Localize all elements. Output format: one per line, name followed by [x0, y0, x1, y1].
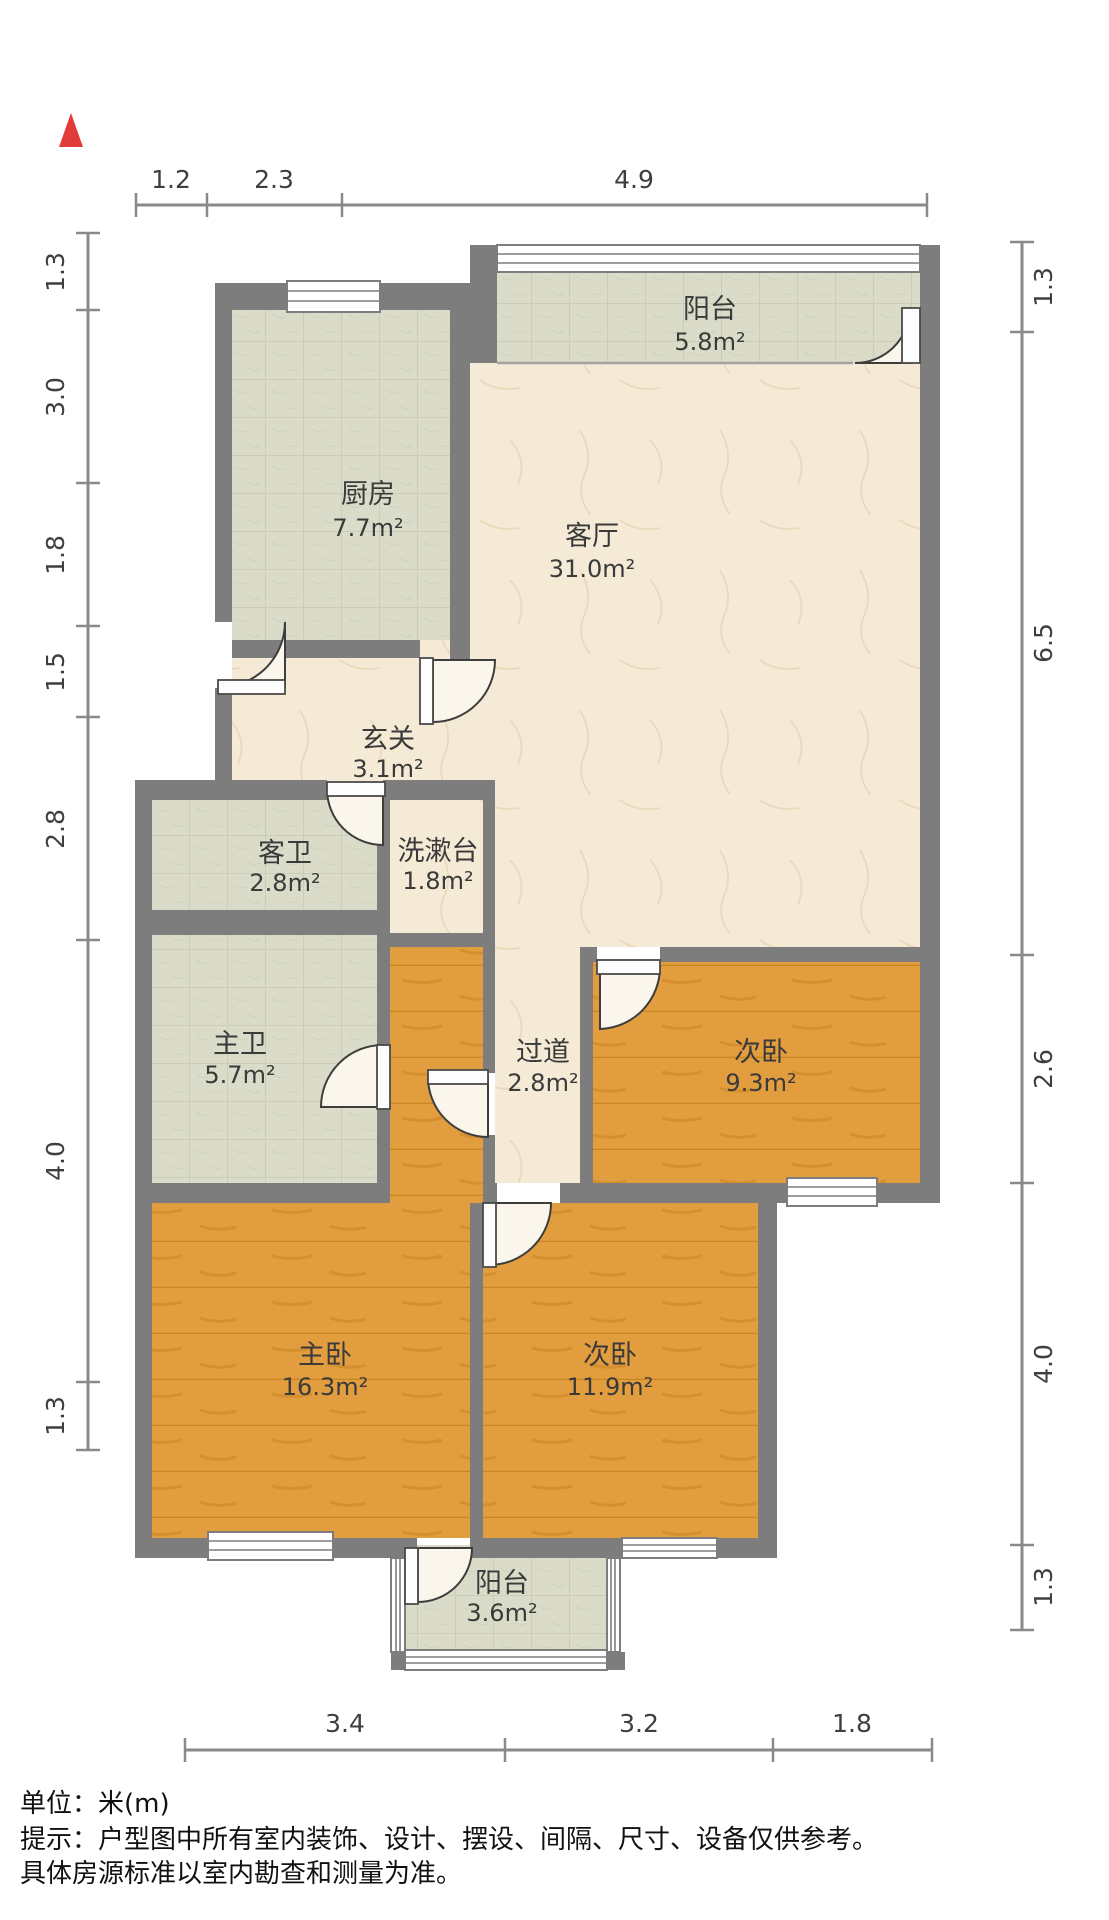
dim-left-3: 1.5 — [41, 652, 70, 692]
room-area-second-bedroom-top: 9.3m² — [725, 1069, 796, 1097]
wall-segment — [377, 1107, 390, 1183]
wall-segment — [580, 947, 597, 962]
window-kitchen — [287, 281, 380, 312]
room-area-kitchen: 7.7m² — [332, 514, 403, 542]
window-balcony-bottom — [405, 1650, 607, 1670]
wall-segment — [580, 947, 593, 1183]
dimension-chain-top: 1.2 2.3 4.9 — [136, 165, 927, 217]
room-label-hallway: 过道 — [516, 1037, 570, 1068]
window-balcony-bottom-left — [391, 1558, 405, 1652]
room-area-second-bedroom-bottom: 11.9m² — [567, 1373, 653, 1401]
window-balcony-bottom-right — [607, 1558, 620, 1652]
dimension-chain-left: 1.3 3.0 1.8 1.5 2.8 4.0 1.3 — [41, 233, 100, 1450]
footer-disclaimer: 单位：米(m) 提示：户型图中所有室内装饰、设计、摆设、间隔、尺寸、设备仅供参考… — [20, 1789, 878, 1889]
dimension-chain-bottom: 3.4 3.2 1.8 — [185, 1709, 932, 1762]
wall-segment — [383, 780, 495, 800]
footer-tip-line2: 具体房源标准以室内勘查和测量为准。 — [20, 1859, 462, 1889]
wall-segment — [377, 935, 390, 1045]
room-label-kitchen: 厨房 — [341, 479, 395, 510]
wall-segment — [390, 933, 495, 947]
room-label-washstand: 洗漱台 — [398, 836, 479, 867]
room-label-balcony-bottom: 阳台 — [475, 1568, 529, 1599]
wall-segment — [483, 1135, 495, 1183]
wall-segment — [920, 245, 940, 1203]
floors — [152, 272, 920, 1668]
wall-segment — [660, 947, 920, 962]
floorplan-svg: 阳台 5.8m² 厨房 7.7m² 客厅 31.0m² 玄关 3.1m² 客卫 … — [0, 0, 1109, 1920]
dim-right-0: 1.3 — [1029, 267, 1058, 307]
footer-unit-line: 单位：米(m) — [20, 1789, 170, 1819]
dim-left-1: 3.0 — [41, 377, 70, 417]
room-label-living-room: 客厅 — [565, 521, 619, 552]
wall-segment — [483, 780, 495, 933]
wall-segment — [470, 1203, 483, 1538]
dim-top-1: 2.3 — [254, 165, 294, 194]
window-second-bedroom-top — [787, 1178, 877, 1206]
wall-segment — [758, 1183, 777, 1558]
room-label-guest-bathroom: 客卫 — [258, 838, 312, 869]
room-area-living-room: 31.0m² — [549, 555, 635, 583]
wall-segment — [450, 310, 470, 660]
dim-bottom-1: 3.2 — [619, 1709, 659, 1738]
room-label-master-bathroom: 主卫 — [213, 1029, 267, 1060]
room-label-entryway: 玄关 — [361, 724, 415, 755]
dim-left-4: 2.8 — [41, 809, 70, 849]
room-label-second-bedroom-bottom: 次卧 — [583, 1340, 637, 1371]
dim-right-1: 6.5 — [1029, 623, 1058, 663]
dim-left-5: 4.0 — [41, 1141, 70, 1181]
dim-top-0: 1.2 — [151, 165, 191, 194]
room-label-second-bedroom-top: 次卧 — [734, 1037, 788, 1068]
wall-segment — [135, 910, 390, 935]
room-label-master-bedroom: 主卧 — [298, 1340, 352, 1371]
dim-bottom-2: 1.8 — [832, 1709, 872, 1738]
dim-right-4: 1.3 — [1029, 1567, 1058, 1607]
room-area-balcony-bottom: 3.6m² — [466, 1599, 537, 1627]
dim-left-6: 1.3 — [41, 1396, 70, 1436]
room-floor-living-room — [470, 363, 920, 947]
north-arrow-icon — [59, 113, 83, 147]
wall-segment — [232, 640, 420, 658]
room-area-entryway: 3.1m² — [352, 755, 423, 783]
room-area-master-bathroom: 5.7m² — [204, 1061, 275, 1089]
dim-left-2: 1.8 — [41, 535, 70, 575]
dim-right-3: 4.0 — [1029, 1344, 1058, 1384]
room-area-washstand: 1.8m² — [402, 867, 473, 895]
floorplan-page: 阳台 5.8m² 厨房 7.7m² 客厅 31.0m² 玄关 3.1m² 客卫 … — [0, 0, 1109, 1920]
window-balcony-top — [497, 245, 920, 272]
footer-tip-line1: 提示：户型图中所有室内装饰、设计、摆设、间隔、尺寸、设备仅供参考。 — [20, 1825, 878, 1855]
room-area-master-bedroom: 16.3m² — [282, 1373, 368, 1401]
room-area-balcony-top: 5.8m² — [674, 328, 745, 356]
window-bedroom-to-balcony — [622, 1538, 717, 1558]
dim-bottom-0: 3.4 — [325, 1709, 365, 1738]
wall-segment — [135, 780, 327, 800]
wall-segment — [215, 310, 232, 622]
wall-segment — [483, 1183, 497, 1203]
dim-left-0: 1.3 — [41, 252, 70, 292]
dim-right-2: 2.6 — [1029, 1049, 1058, 1089]
room-label-balcony-top: 阳台 — [683, 294, 737, 325]
dimension-chain-right: 1.3 6.5 2.6 4.0 1.3 — [1010, 242, 1058, 1630]
room-area-hallway: 2.8m² — [507, 1069, 578, 1097]
wall-segment — [607, 1652, 625, 1670]
room-area-guest-bathroom: 2.8m² — [249, 869, 320, 897]
wall-segment — [483, 947, 495, 1073]
wall-segment — [391, 1652, 405, 1670]
wall-segment — [560, 1183, 940, 1203]
dim-top-2: 4.9 — [614, 165, 654, 194]
wall-segment — [135, 1183, 390, 1203]
window-master-bedroom — [208, 1532, 333, 1560]
